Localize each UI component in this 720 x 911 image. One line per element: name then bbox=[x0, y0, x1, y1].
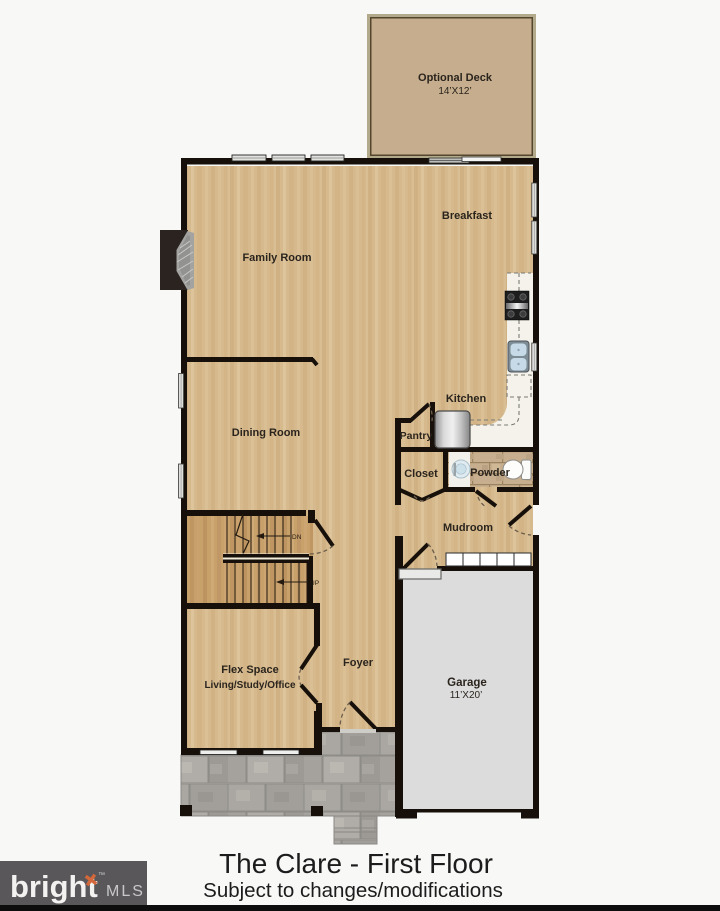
svg-text:Optional Deck: Optional Deck bbox=[418, 72, 493, 84]
svg-text:UP: UP bbox=[310, 580, 319, 587]
svg-text:Family Room: Family Room bbox=[242, 252, 311, 264]
svg-text:Dining Room: Dining Room bbox=[232, 427, 301, 439]
svg-text:Closet: Closet bbox=[404, 468, 438, 480]
svg-text:Flex Space: Flex Space bbox=[221, 664, 278, 676]
svg-text:Breakfast: Breakfast bbox=[442, 210, 492, 222]
svg-text:™: ™ bbox=[98, 872, 105, 879]
svg-text:Mudroom: Mudroom bbox=[443, 522, 493, 534]
svg-text:Living/Study/Office: Living/Study/Office bbox=[204, 680, 296, 691]
svg-text:Garage: Garage bbox=[447, 677, 487, 689]
svg-text:14’X12’: 14’X12’ bbox=[438, 86, 471, 97]
svg-text:DN: DN bbox=[292, 534, 302, 541]
svg-text:bright: bright bbox=[10, 869, 98, 904]
svg-text:Kitchen: Kitchen bbox=[446, 393, 487, 405]
svg-text:Foyer: Foyer bbox=[343, 657, 374, 669]
svg-text:The Clare - First Floor: The Clare - First Floor bbox=[219, 848, 493, 879]
svg-text:Powder: Powder bbox=[470, 467, 510, 479]
svg-text:11’X20’: 11’X20’ bbox=[450, 690, 483, 701]
svg-text:MLS: MLS bbox=[106, 883, 145, 900]
svg-text:Subject to changes/modificatio: Subject to changes/modifications bbox=[203, 879, 503, 902]
svg-text:Pantry: Pantry bbox=[400, 430, 433, 442]
